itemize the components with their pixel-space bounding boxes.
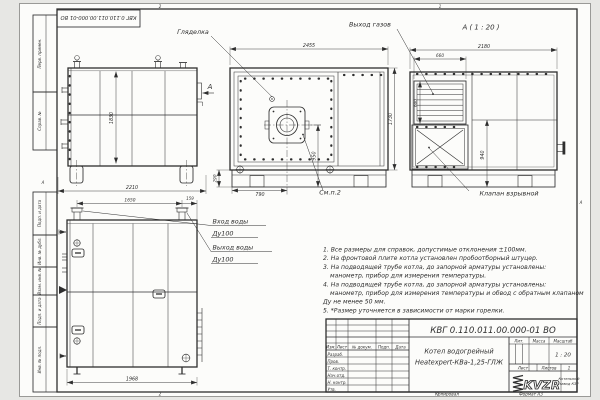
drawing-sheet: 2 1 2 1 А А Перв. примен. Справ. № Подп.…	[20, 4, 590, 396]
col-doc: № докум.	[351, 344, 372, 349]
dim-louver-height: 600	[413, 99, 418, 107]
spring-icon	[513, 376, 523, 392]
front-door	[238, 76, 334, 162]
front-body	[230, 68, 388, 170]
dim-burner-offset: 790	[255, 192, 264, 198]
view-arrow-label: А	[207, 83, 213, 91]
zone-mark-top-left: 2	[159, 4, 162, 9]
x-brace-panel	[412, 125, 468, 169]
title-doc-number: КВГ 0.110.011.00.000-01 ВО	[430, 326, 556, 336]
fold-mark-right: А	[579, 200, 583, 205]
margin-label-inv-dubl: Инв. № дубл.	[37, 237, 42, 264]
side-top-stub	[179, 63, 187, 69]
margin-label-podp-data-2: Подп. и дата	[37, 297, 42, 325]
margin-label-vzam-inv: Взам. инв. №	[37, 267, 42, 294]
title-block: КВГ 0.110.011.00.000-01 ВО Котел водогре…	[326, 319, 580, 392]
col-data: Дата	[394, 344, 406, 349]
zone-mark-bottom-left: 2	[159, 391, 162, 396]
note-line-3: 3. На подводящей трубе котла, до запорно…	[323, 263, 546, 271]
product-name-line1: Котел водогрейный	[424, 348, 494, 356]
note-line-8: 5. *Размер уточняется в зависимости от м…	[323, 307, 505, 314]
view-a-title: А ( 1 : 20 )	[461, 24, 499, 32]
margin-label-inv-podl: Инв. № подл.	[37, 346, 42, 374]
dim-front-width: 2455	[303, 43, 315, 49]
label-water-in-dn: Ду100	[212, 230, 234, 238]
rear-anchor-bolts	[74, 367, 186, 374]
note-line-4: манометр, прибор для измерения температу…	[330, 272, 486, 280]
logo-caption-line2: завод КЗР	[559, 382, 579, 386]
row-nachotd: Нач.отд.	[328, 373, 346, 378]
sheet-label: Лист	[517, 365, 529, 370]
footer-copy-label: Копировал	[435, 392, 459, 396]
label-see-item: См.п.2	[319, 189, 341, 197]
margin-label-sprav: Справ. №	[37, 111, 42, 130]
dim-side-width: 2210	[126, 185, 138, 191]
side-body	[68, 68, 197, 166]
fold-mark-left: А	[41, 180, 45, 185]
rear-left-fittings	[59, 230, 67, 359]
company-logo: KVZR Котельный завод КЗР	[513, 376, 580, 393]
label-explosion-valve: Клапан взрывной	[479, 190, 538, 198]
margin-label-perv-primen: Перв. примен.	[37, 38, 42, 68]
note-line-5: 4. На подводящей трубе котла, до запорно…	[323, 280, 546, 288]
header-mass: Масса	[533, 338, 546, 343]
note-line-2: 2. На фронтовой плите котла установлен п…	[323, 254, 538, 262]
rear-pipe-stub-left	[71, 208, 84, 220]
front-base	[232, 170, 386, 187]
dim-rear-width: 1968	[126, 377, 138, 383]
row-prov: Пров.	[328, 359, 340, 364]
top-doc-number-stamp: КВГ 0.110.011.00.000-01 ВО	[57, 10, 140, 27]
water-connection-labels: Вход воды Ду100 Выход воды Ду100	[83, 211, 272, 264]
col-podp: Подп.	[378, 344, 390, 349]
drawing-canvas: 2 1 2 1 А А Перв. примен. Справ. № Подп.…	[20, 4, 590, 396]
label-water-in: Вход воды	[213, 218, 249, 226]
dim-valve-height: 940	[480, 150, 486, 159]
zone-mark-top-right: 1	[439, 4, 442, 9]
sheets-label: Листов	[541, 365, 558, 370]
dim-louver-width: 660	[436, 53, 444, 58]
note-line-7: Ду не менее 50 мм.	[322, 299, 386, 306]
rear-pipe-stub-right	[176, 208, 189, 220]
pipe-stub-right	[557, 142, 565, 155]
dim-view-a-width: 2180	[478, 44, 490, 50]
label-gas-outlet: Выход газов	[349, 21, 391, 29]
side-top-valve-2	[154, 56, 162, 69]
side-right-bracket	[197, 83, 203, 106]
dim-base-height: 290	[212, 174, 217, 182]
label-sight-glass: Гляделка	[177, 28, 209, 36]
technical-notes: 1. Все размеры для справок, допустимые о…	[322, 247, 584, 315]
sheets-value: 1	[568, 366, 571, 372]
view-a-base	[412, 170, 555, 187]
col-izm: Изм.	[326, 344, 335, 349]
logo-caption-line1: Котельный	[559, 377, 581, 381]
label-water-out: Выход воды	[213, 244, 254, 252]
label-water-out-dn: Ду100	[212, 256, 234, 264]
rear-body	[67, 220, 197, 367]
margin-label-podp-data-1: Подп. и дата	[37, 199, 42, 227]
row-nkontr: Н. контр.	[328, 380, 347, 385]
side-top-valve-1	[73, 56, 81, 69]
row-utv: Утв.	[328, 387, 336, 392]
louver-grille	[414, 81, 466, 124]
dim-rear-pipe-span: 1650	[124, 198, 135, 204]
row-razrab: Разраб.	[328, 352, 344, 357]
product-name-line2: Heatexpert-КВа-1,25-ГЛЖ	[415, 359, 504, 367]
note-line-6: манометр, прибор для измерения температу…	[330, 289, 584, 297]
rear-ladder-strip	[197, 308, 202, 362]
dim-front-right-height: 1730	[388, 113, 394, 125]
col-list: Лист	[336, 344, 348, 349]
view-direction-arrow: А	[203, 83, 215, 93]
margin-stamps: Перв. примен. Справ. № Подп. и дата Инв.…	[33, 15, 57, 392]
scale-value: 1 : 20	[555, 353, 571, 359]
view-front: 2455 1730 790 290 950 Гляделка См.п.2	[177, 28, 397, 198]
doc-number-top-text: КВГ 0.110.011.00.000-01 ВО	[60, 14, 137, 20]
side-left-flanges	[61, 87, 68, 149]
header-scale: Масштаб	[553, 338, 573, 343]
view-a: А ( 1 : 20 )	[349, 21, 565, 198]
view-rear: 1650 159 1968 Вход воды Ду100 Выход воды…	[59, 196, 272, 386]
rear-hatch-badges	[72, 239, 191, 363]
dim-side-height: 1830	[109, 112, 115, 124]
logo-text: KVZR	[523, 378, 560, 392]
note-line-1: 1. Все размеры для справок, допустимые о…	[323, 247, 527, 254]
header-lit: Лит.	[513, 338, 523, 343]
page: { "sheet": { "doc_number_top": "КВГ 0.11…	[0, 0, 600, 400]
view-side: 1830 2210 А	[58, 56, 214, 195]
row-tkontr: Т. контр.	[328, 366, 347, 371]
dim-rear-pipe-edge: 159	[186, 196, 194, 201]
footer-format-label: Формат А3	[519, 392, 543, 396]
dim-burner-height: 950	[311, 151, 317, 160]
